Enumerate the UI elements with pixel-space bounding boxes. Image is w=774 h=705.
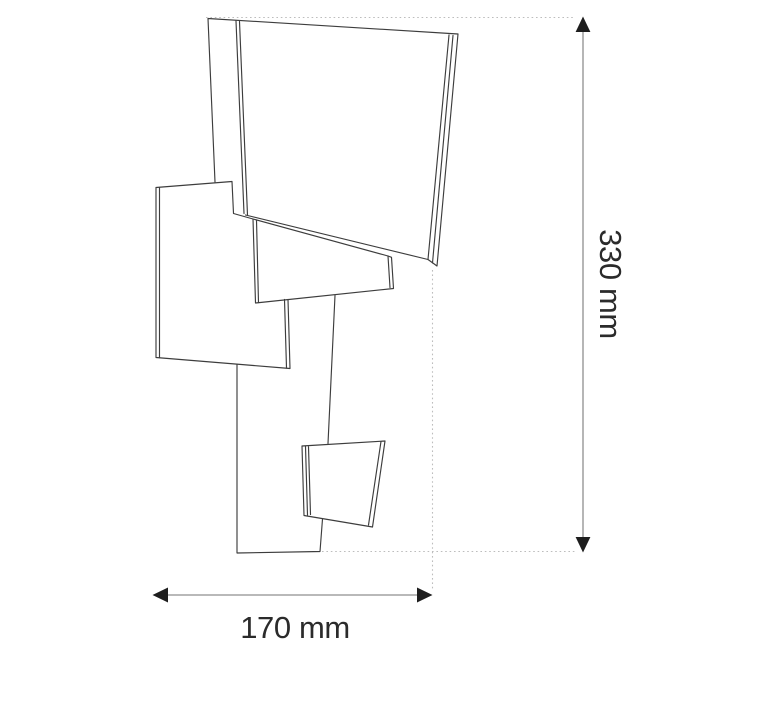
technical-drawing-canvas: 330 mm 170 mm <box>0 0 774 705</box>
arrow-left-icon <box>153 588 169 603</box>
width-dimension-label: 170 mm <box>240 610 350 646</box>
height-dimension <box>206 17 590 553</box>
left-back-panel <box>156 182 290 369</box>
wall-lamp-dimensional-drawing <box>0 0 774 705</box>
width-dimension <box>153 270 433 603</box>
connector-edge <box>328 296 335 444</box>
lower-body-strip <box>237 365 323 554</box>
wall-lamp-outline <box>156 19 458 554</box>
height-dimension-label: 330 mm <box>592 229 628 339</box>
bottom-small-panel <box>302 441 385 527</box>
arrow-down-icon <box>576 537 591 553</box>
arrow-right-icon <box>417 588 433 603</box>
top-shade-panel <box>208 19 458 267</box>
arrow-up-icon <box>576 17 591 33</box>
middle-wedge-panel <box>253 219 394 303</box>
